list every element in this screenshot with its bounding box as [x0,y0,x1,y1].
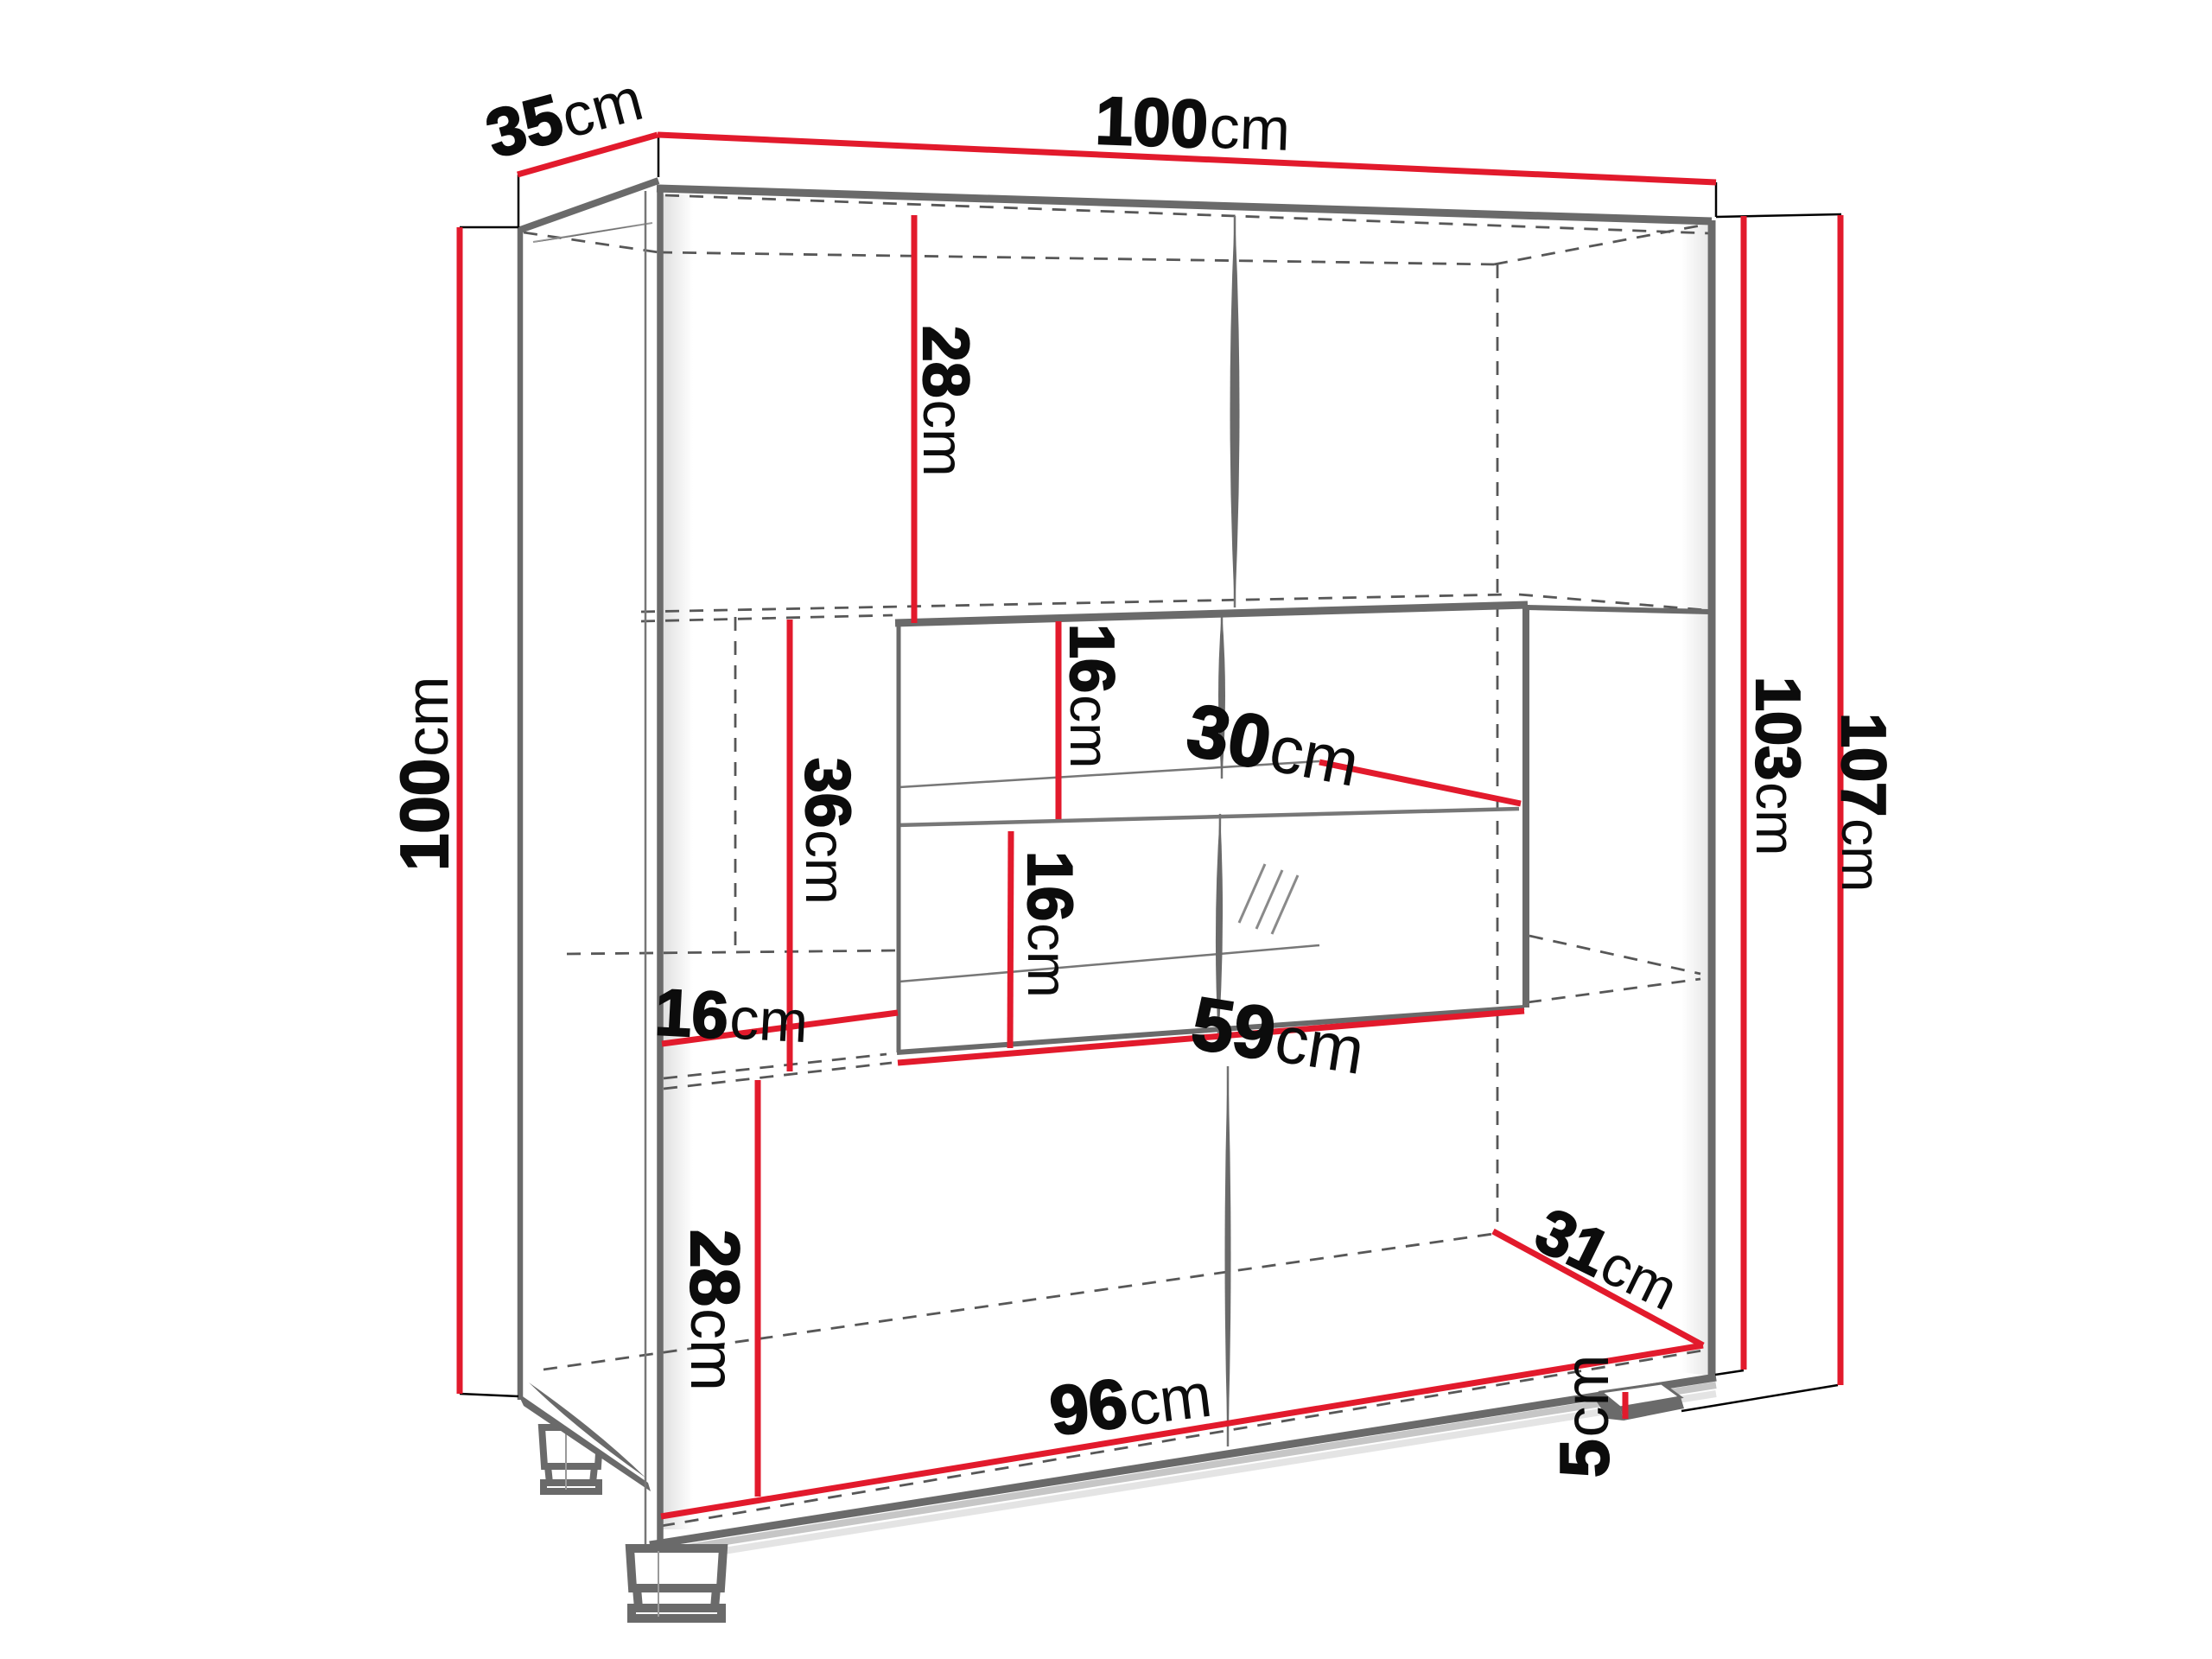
svg-text:28cm: 28cm [677,1230,753,1391]
svg-text:16cm: 16cm [1014,851,1084,998]
svg-text:28cm: 28cm [910,326,982,477]
svg-text:103cm: 103cm [1743,677,1812,855]
svg-text:5cm: 5cm [1546,1355,1623,1478]
svg-text:107cm: 107cm [1828,713,1897,892]
svg-text:16cm: 16cm [653,976,810,1057]
svg-text:36cm: 36cm [792,758,862,905]
svg-text:16cm: 16cm [1057,624,1126,768]
svg-text:100cm: 100cm [386,677,462,871]
svg-text:100cm: 100cm [1094,82,1291,165]
